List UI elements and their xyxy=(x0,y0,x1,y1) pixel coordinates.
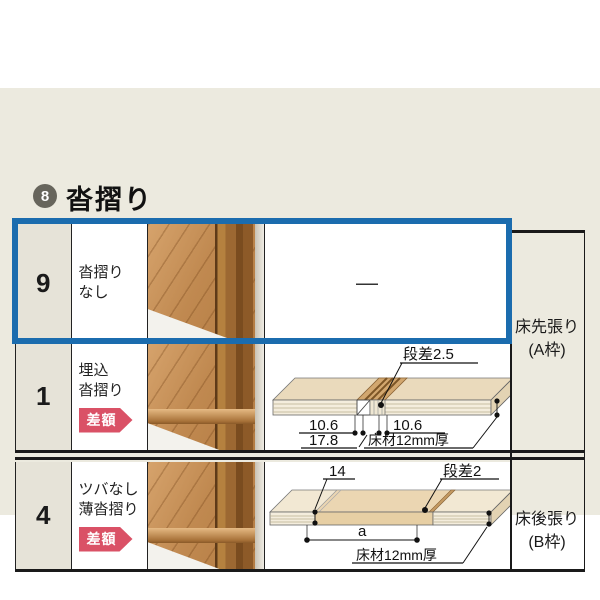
option-label-cell: 埋込 沓摺り 差額 xyxy=(72,343,148,450)
dim-step-label: 段差2.5 xyxy=(403,346,454,363)
option-label-line2: 沓摺り xyxy=(79,381,147,401)
frame-type-a-line2: (A枠) xyxy=(511,339,583,362)
frame-edge-strip xyxy=(255,462,264,569)
thin-sill-cross-section: 14 段差2 a 床材12mm厚 xyxy=(265,462,510,569)
section-title: 沓摺り xyxy=(66,178,153,217)
no-diagram-dash: — xyxy=(356,270,378,296)
diagram-cell: — xyxy=(265,224,510,342)
table-right-border xyxy=(584,230,586,572)
option-label-line1: 沓摺り xyxy=(79,263,147,283)
option-number: 1 xyxy=(16,343,72,450)
price-difference-badge: 差額 xyxy=(79,408,133,433)
option-label-line2: なし xyxy=(79,283,147,303)
option-label-cell: 沓摺り なし xyxy=(72,224,148,342)
sill-band xyxy=(148,528,255,543)
frame-type-b-line1: 床後張り xyxy=(511,508,583,531)
frame-type-b-line2: (B枠) xyxy=(511,531,583,554)
table-top-border xyxy=(512,230,585,233)
frame-type-a-label: 床先張り (A枠) xyxy=(511,316,583,362)
dim-width-label: 14 xyxy=(329,463,346,480)
dim-total-label: 17.8 xyxy=(309,432,338,449)
diagram-embedded-sill: 段差2.5 10.6 10.6 17.8 xyxy=(265,343,510,450)
section-divider-double-line xyxy=(15,450,585,460)
flooring-photo xyxy=(148,224,265,342)
embedded-sill-cross-section: 段差2.5 10.6 10.6 17.8 xyxy=(265,343,510,450)
table-bottom-border xyxy=(15,569,585,572)
door-frame-strip xyxy=(215,343,253,450)
option-row-4[interactable]: 4 ツバなし 薄沓摺り 差額 xyxy=(15,462,510,569)
option-row-1[interactable]: 1 埋込 沓摺り 差額 xyxy=(15,343,510,450)
diagram-thin-sill: 14 段差2 a 床材12mm厚 xyxy=(265,462,510,569)
frame-type-a-line1: 床先張り xyxy=(511,316,583,339)
frame-edge-strip xyxy=(255,224,264,342)
flooring-photo xyxy=(148,462,265,569)
option-label-line1: ツバなし xyxy=(79,480,147,500)
option-label-line2: 薄沓摺り xyxy=(79,500,147,520)
content-panel: 8 沓摺り 9 沓摺り なし — 1 埋込 沓摺り xyxy=(0,88,600,515)
option-label-cell: ツバなし 薄沓摺り 差額 xyxy=(72,462,148,569)
price-difference-badge: 差額 xyxy=(79,527,133,552)
flooring-photo xyxy=(148,343,265,450)
right-column-divider xyxy=(510,230,512,572)
floor-thickness-label: 床材12mm厚 xyxy=(356,547,437,563)
sill-band xyxy=(148,409,255,424)
option-label-line1: 埋込 xyxy=(79,361,147,381)
door-frame-strip xyxy=(215,462,253,569)
door-frame-strip xyxy=(215,224,253,342)
page: 8 沓摺り 9 沓摺り なし — 1 埋込 沓摺り xyxy=(0,0,600,600)
option-row-9[interactable]: 9 沓摺り なし — xyxy=(15,224,510,342)
frame-edge-strip xyxy=(255,343,264,450)
option-number: 4 xyxy=(16,462,72,569)
floor-thickness-label: 床材12mm厚 xyxy=(368,432,449,448)
dim-step-label: 段差2 xyxy=(443,463,481,480)
frame-type-b-label: 床後張り (B枠) xyxy=(511,508,583,554)
option-number: 9 xyxy=(16,224,72,342)
dim-a-label: a xyxy=(358,523,367,540)
section-number-badge: 8 xyxy=(33,184,57,208)
